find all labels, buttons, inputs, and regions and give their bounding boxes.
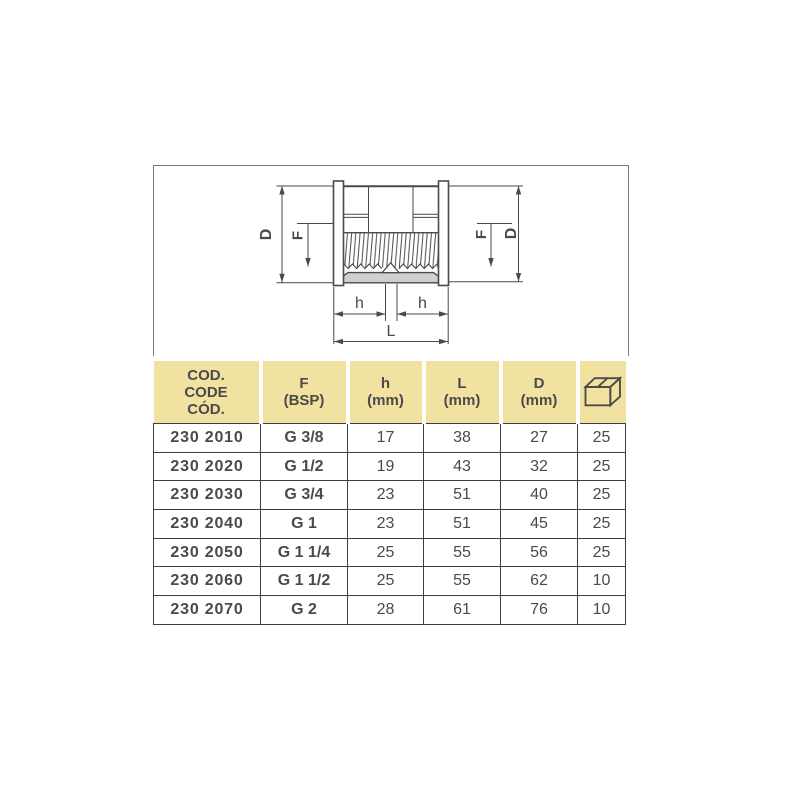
cell-h: 28: [348, 596, 424, 625]
header-l-unit: (mm): [426, 392, 499, 409]
cell-l: 61: [424, 596, 501, 625]
table-row: 230 2030 G 3/4 23 51 40 25: [154, 481, 626, 510]
table-row: 230 2060 G 1 1/2 25 55 62 10: [154, 567, 626, 596]
cell-l: 55: [424, 538, 501, 567]
cell-d: 32: [501, 452, 578, 481]
col-header-f-bsp: F (BSP): [261, 361, 348, 424]
dim-label-length: L: [387, 323, 396, 340]
dim-label-d-right: D: [503, 228, 520, 240]
cell-qty: 10: [578, 596, 626, 625]
cell-qty: 25: [578, 510, 626, 539]
cell-l: 38: [424, 424, 501, 453]
header-row: COD. CODE CÓD. F (BSP) h (mm) L (mm) D (…: [154, 361, 626, 424]
cell-d: 40: [501, 481, 578, 510]
col-header-qty: [578, 361, 626, 424]
cell-qty: 25: [578, 481, 626, 510]
cell-code: 230 2040: [154, 510, 261, 539]
fitting-technical-drawing: D F F D h h L: [153, 165, 629, 357]
cell-h: 25: [348, 567, 424, 596]
header-f-unit: (BSP): [263, 392, 346, 409]
cell-h: 25: [348, 538, 424, 567]
cell-code: 230 2050: [154, 538, 261, 567]
cell-h: 17: [348, 424, 424, 453]
header-d-unit: (mm): [503, 392, 576, 409]
cell-f-bsp: G 3/8: [261, 424, 348, 453]
dim-label-f-left: F: [290, 231, 307, 240]
drawing-frame: D F F D h h L: [153, 165, 629, 356]
col-header-h: h (mm): [348, 361, 424, 424]
cell-d: 45: [501, 510, 578, 539]
cell-code: 230 2070: [154, 596, 261, 625]
col-header-code: COD. CODE CÓD.: [154, 361, 261, 424]
header-code-line2: CODE: [154, 384, 259, 401]
thread-hatching: [344, 233, 438, 268]
cell-qty: 25: [578, 452, 626, 481]
cell-code: 230 2030: [154, 481, 261, 510]
cell-l: 51: [424, 510, 501, 539]
cell-f-bsp: G 1 1/2: [261, 567, 348, 596]
cell-qty: 25: [578, 424, 626, 453]
cell-l: 51: [424, 481, 501, 510]
spec-table-header: COD. CODE CÓD. F (BSP) h (mm) L (mm) D (…: [154, 361, 626, 424]
cell-f-bsp: G 2: [261, 596, 348, 625]
header-h-unit: (mm): [350, 392, 422, 409]
cell-f-bsp: G 1 1/4: [261, 538, 348, 567]
cell-d: 27: [501, 424, 578, 453]
spec-table: COD. CODE CÓD. F (BSP) h (mm) L (mm) D (…: [153, 361, 626, 625]
table-row: 230 2040 G 1 23 51 45 25: [154, 510, 626, 539]
cell-l: 43: [424, 452, 501, 481]
cell-f-bsp: G 1: [261, 510, 348, 539]
section-bottom-wall: [334, 273, 448, 283]
header-code-line1: COD.: [154, 367, 259, 384]
fitting-body: [334, 181, 449, 286]
cell-f-bsp: G 1/2: [261, 452, 348, 481]
dim-label-d-left: D: [258, 229, 275, 241]
col-header-d: D (mm): [501, 361, 578, 424]
header-d-label: D: [503, 375, 576, 392]
header-l-label: L: [426, 375, 499, 392]
header-h-label: h: [350, 375, 422, 392]
table-row: 230 2070 G 2 28 61 76 10: [154, 596, 626, 625]
left-end-band: [334, 181, 344, 286]
cell-code: 230 2060: [154, 567, 261, 596]
dim-label-h-right: h: [418, 295, 427, 312]
cell-h: 23: [348, 481, 424, 510]
cell-code: 230 2020: [154, 452, 261, 481]
cell-d: 76: [501, 596, 578, 625]
dim-label-h-left: h: [355, 295, 364, 312]
table-row: 230 2010 G 3/8 17 38 27 25: [154, 424, 626, 453]
cell-h: 19: [348, 452, 424, 481]
cell-d: 56: [501, 538, 578, 567]
right-end-band: [439, 181, 449, 286]
table-row: 230 2020 G 1/2 19 43 32 25: [154, 452, 626, 481]
cell-qty: 25: [578, 538, 626, 567]
table-row: 230 2050 G 1 1/4 25 55 56 25: [154, 538, 626, 567]
cell-f-bsp: G 3/4: [261, 481, 348, 510]
cell-d: 62: [501, 567, 578, 596]
cell-code: 230 2010: [154, 424, 261, 453]
cell-l: 55: [424, 567, 501, 596]
cell-h: 23: [348, 510, 424, 539]
cell-qty: 10: [578, 567, 626, 596]
header-code-line3: CÓD.: [154, 401, 259, 418]
catalog-page: { "drawing": { "description": "cross-sec…: [0, 0, 800, 800]
col-header-l: L (mm): [424, 361, 501, 424]
spec-table-body: 230 2010 G 3/8 17 38 27 25 230 2020 G 1/…: [154, 424, 626, 625]
dim-label-f-right: F: [473, 230, 490, 239]
packaging-box-icon: [582, 375, 623, 409]
header-f-label: F: [263, 375, 346, 392]
